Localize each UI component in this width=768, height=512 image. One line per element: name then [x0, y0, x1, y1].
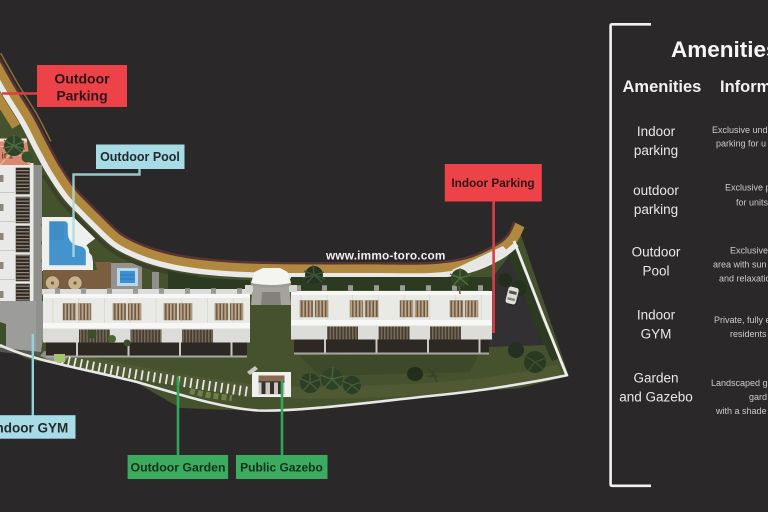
svg-text:Amenities: Amenities — [671, 37, 768, 62]
svg-text:Information: Information — [720, 78, 768, 96]
svg-text:and Gazebo: and Gazebo — [619, 390, 693, 405]
svg-text:Amenities: Amenities — [623, 78, 702, 96]
svg-text:Parking: Parking — [56, 88, 107, 104]
svg-text:Garden: Garden — [633, 371, 678, 386]
svg-text:parking for u: parking for u — [716, 139, 766, 149]
svg-text:www.immo-toro.com: www.immo-toro.com — [325, 249, 446, 263]
svg-text:and relaxatio: and relaxatio — [719, 274, 768, 284]
svg-text:area with sun: area with sun — [713, 260, 767, 270]
svg-text:Indoor GYM: Indoor GYM — [0, 421, 68, 436]
svg-text:GYM: GYM — [641, 327, 672, 342]
svg-text:for units: for units — [736, 198, 768, 208]
svg-text:with a shade: with a shade — [715, 406, 767, 416]
svg-text:Outdoor: Outdoor — [54, 71, 110, 87]
svg-text:Exclusive: Exclusive — [730, 246, 768, 256]
svg-text:Outdoor Garden: Outdoor Garden — [131, 461, 226, 475]
svg-text:Exclusive p: Exclusive p — [725, 183, 768, 193]
svg-text:Pool: Pool — [642, 264, 669, 279]
svg-text:Indoor: Indoor — [637, 124, 676, 139]
svg-text:parking: parking — [634, 202, 678, 217]
svg-text:Public Gazebo: Public Gazebo — [240, 461, 323, 475]
svg-text:gard: gard — [749, 392, 767, 402]
svg-text:Indoor Parking: Indoor Parking — [451, 176, 534, 190]
svg-text:Private, fully e: Private, fully e — [714, 315, 768, 325]
svg-text:Outdoor: Outdoor — [632, 245, 681, 260]
svg-text:Exclusive und: Exclusive und — [712, 125, 768, 135]
svg-text:Indoor: Indoor — [637, 308, 676, 323]
svg-text:outdoor: outdoor — [633, 183, 679, 198]
svg-text:Landscaped g: Landscaped g — [711, 378, 768, 388]
svg-text:Outdoor Pool: Outdoor Pool — [100, 150, 180, 164]
svg-text:residents: residents — [730, 329, 767, 339]
svg-text:parking: parking — [634, 143, 678, 158]
